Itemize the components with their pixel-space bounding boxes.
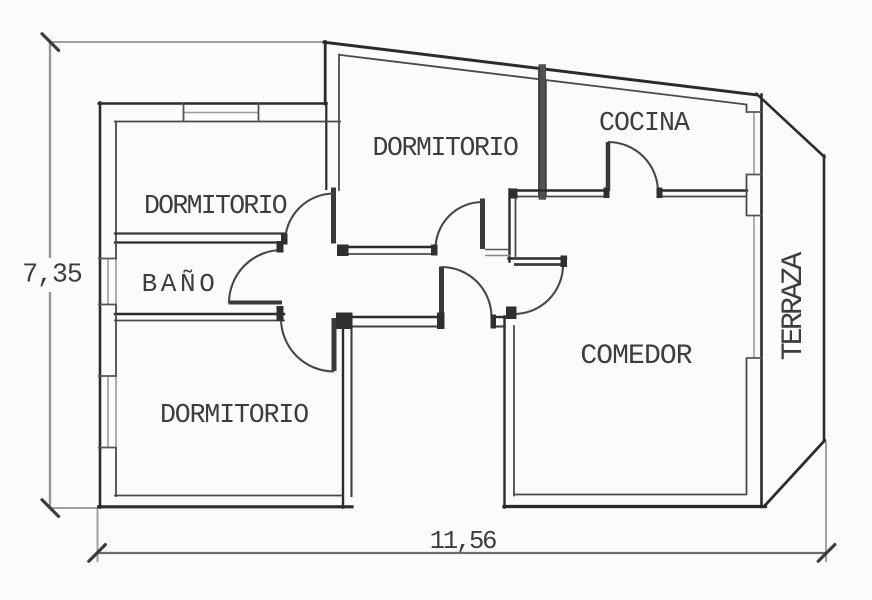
svg-text:DORMITORIO: DORMITORIO [372, 133, 518, 163]
svg-text:COCINA: COCINA [599, 108, 690, 138]
svg-text:BAÑO: BAÑO [142, 269, 219, 299]
svg-text:DORMITORIO: DORMITORIO [160, 400, 308, 430]
svg-text:TERRAZA: TERRAZA [777, 252, 811, 361]
svg-text:DORMITORIO: DORMITORIO [144, 191, 287, 221]
svg-text:11,56: 11,56 [430, 527, 496, 556]
svg-text:COMEDOR: COMEDOR [580, 341, 692, 372]
svg-text:7,35: 7,35 [22, 260, 82, 290]
